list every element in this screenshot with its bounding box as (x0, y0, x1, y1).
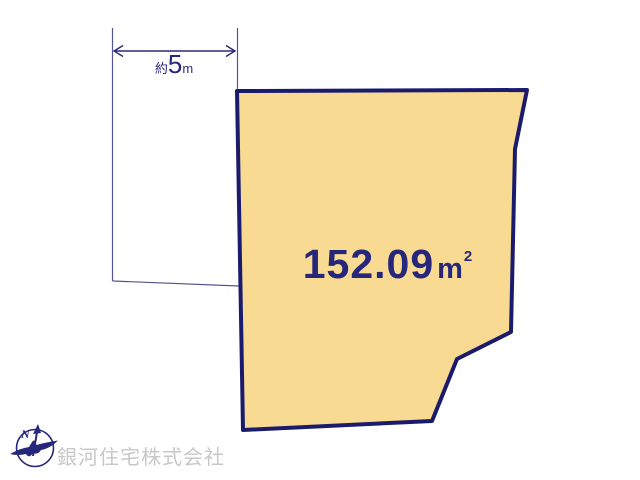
north-label: N (20, 427, 31, 441)
company-watermark: 銀河住宅株式会社 (57, 446, 225, 469)
land-plot-diagram: 約5m 152.09m2 N 銀河住宅株式会社 (0, 0, 640, 480)
dimension-unit: m (182, 61, 193, 76)
area-superscript: 2 (464, 248, 473, 265)
dimension-prefix: 約 (155, 61, 168, 76)
area-unit: m (437, 253, 464, 285)
plot-drawing-svg: 約5m 152.09m2 N 銀河住宅株式会社 (0, 0, 640, 480)
compass-logo: N (10, 424, 58, 467)
boundary-line-bottom (113, 281, 240, 286)
dimension-label: 約5m (155, 49, 193, 79)
dimension-value: 5 (168, 49, 182, 79)
area-value: 152.09 (303, 241, 434, 287)
dimension-annotation: 約5m (114, 46, 235, 80)
